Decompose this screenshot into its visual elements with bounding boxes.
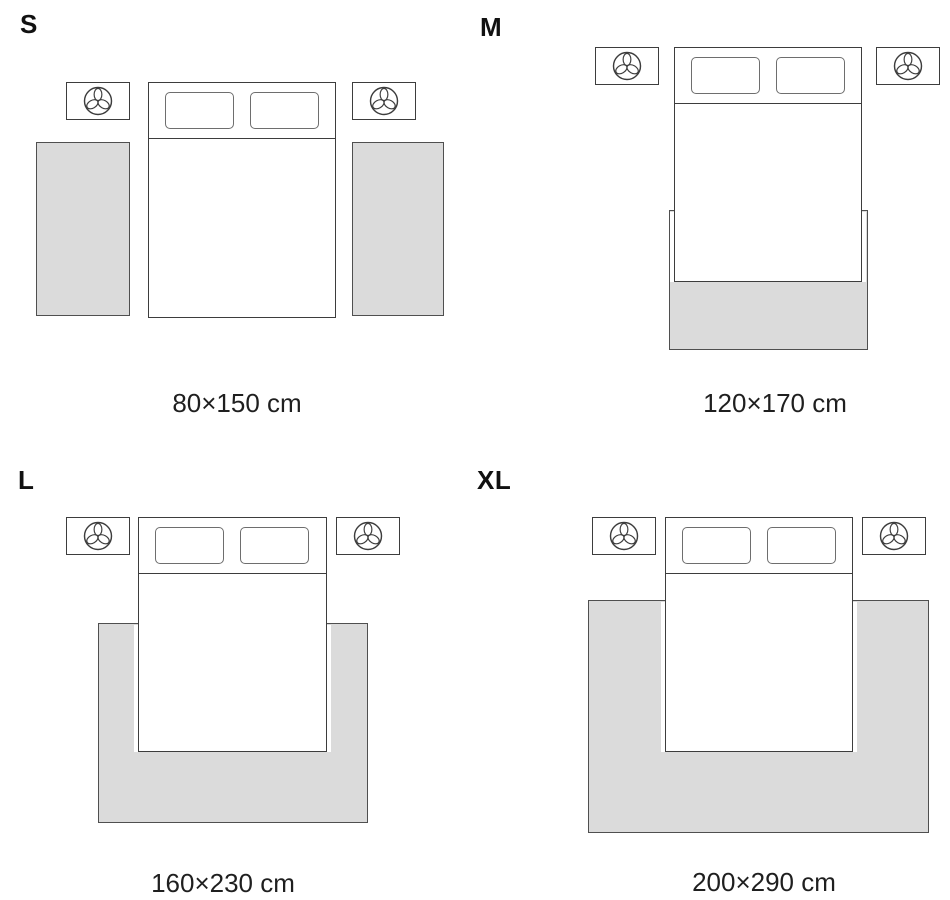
size-label-s: S bbox=[20, 11, 38, 37]
size-label-m: M bbox=[480, 14, 502, 40]
plant-icon bbox=[609, 48, 645, 84]
pillow-left bbox=[682, 527, 751, 564]
bed bbox=[674, 47, 862, 282]
nightstand-left bbox=[66, 517, 130, 555]
rug-runner-right bbox=[352, 142, 444, 316]
bed bbox=[148, 82, 336, 318]
pillow-right bbox=[767, 527, 836, 564]
size-caption-xl: 200×290 cm bbox=[654, 869, 874, 895]
pillow-left bbox=[165, 92, 234, 129]
size-caption-m: 120×170 cm bbox=[665, 390, 885, 416]
pillow-right bbox=[240, 527, 309, 564]
pillow-right bbox=[776, 57, 845, 94]
size-caption-s: 80×150 cm bbox=[127, 390, 347, 416]
bed bbox=[138, 517, 327, 752]
size-label-xl: XL bbox=[477, 467, 511, 493]
bed-headboard bbox=[666, 518, 852, 574]
plant-icon bbox=[80, 518, 116, 554]
size-label-l: L bbox=[18, 467, 34, 493]
bed bbox=[665, 517, 853, 752]
nightstand-right bbox=[336, 517, 400, 555]
nightstand-left bbox=[66, 82, 130, 120]
pillow-left bbox=[691, 57, 760, 94]
rug-size-guide: S 80×150 cm M bbox=[0, 0, 950, 900]
plant-icon bbox=[876, 518, 912, 554]
nightstand-left bbox=[592, 517, 656, 555]
nightstand-right bbox=[862, 517, 926, 555]
bed-headboard bbox=[675, 48, 861, 104]
nightstand-right bbox=[876, 47, 940, 85]
nightstand-left bbox=[595, 47, 659, 85]
pillow-left bbox=[155, 527, 224, 564]
plant-icon bbox=[350, 518, 386, 554]
plant-icon bbox=[366, 83, 402, 119]
pillow-right bbox=[250, 92, 319, 129]
plant-icon bbox=[606, 518, 642, 554]
bed-headboard bbox=[149, 83, 335, 139]
plant-icon bbox=[890, 48, 926, 84]
bed-headboard bbox=[139, 518, 326, 574]
nightstand-right bbox=[352, 82, 416, 120]
size-caption-l: 160×230 cm bbox=[113, 870, 333, 896]
plant-icon bbox=[80, 83, 116, 119]
rug-runner-left bbox=[36, 142, 130, 316]
